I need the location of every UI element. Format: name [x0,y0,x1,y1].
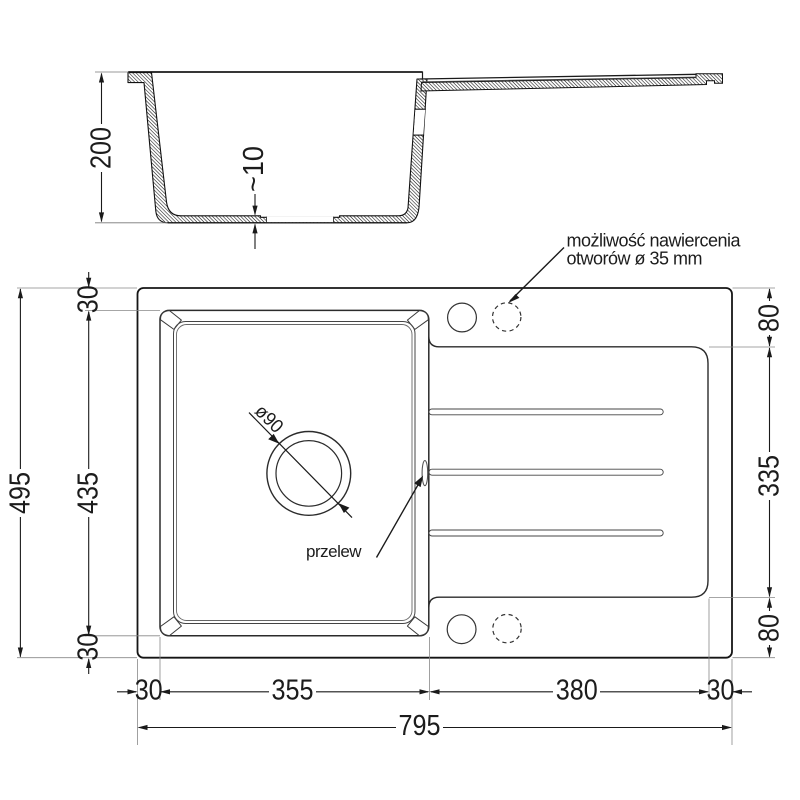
svg-text:795: 795 [399,710,441,742]
svg-text:możliwość nawiercenia: możliwość nawiercenia [567,231,742,251]
svg-text:30: 30 [135,674,163,706]
svg-text:380: 380 [556,674,598,706]
svg-text:przelew: przelew [306,542,362,561]
svg-text:80: 80 [754,304,786,332]
svg-text:otworów ø 35 mm: otworów ø 35 mm [567,249,703,269]
svg-text:30: 30 [73,633,105,661]
svg-text:30: 30 [707,674,735,706]
svg-text:495: 495 [4,472,36,514]
svg-text:200: 200 [86,127,118,169]
svg-text:335: 335 [754,455,786,497]
svg-text:80: 80 [754,614,786,642]
svg-text:435: 435 [73,472,105,514]
svg-text:355: 355 [272,674,314,706]
svg-text:~10: ~10 [238,146,270,192]
svg-text:30: 30 [73,285,105,313]
